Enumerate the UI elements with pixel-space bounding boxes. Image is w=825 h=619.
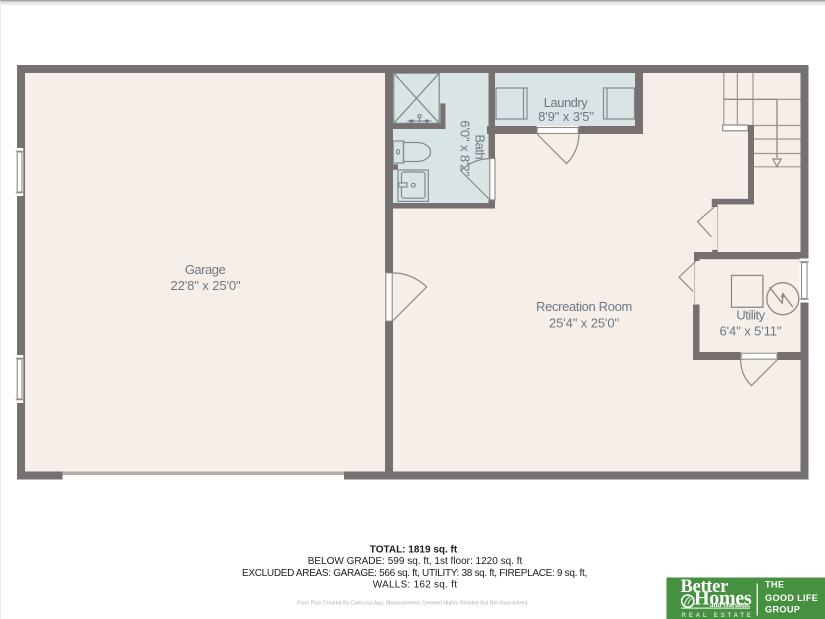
svg-text:Garage: Garage (185, 262, 226, 277)
svg-text:EXCLUDED AREAS: GARAGE: 566 sq: EXCLUDED AREAS: GARAGE: 566 sq. ft, UTIL… (242, 568, 587, 579)
svg-text:GOOD LIFE: GOOD LIFE (765, 593, 818, 603)
svg-text:Recreation Room: Recreation Room (536, 299, 632, 314)
svg-text:TOTAL: 1819 sq. ft: TOTAL: 1819 sq. ft (370, 545, 458, 556)
svg-text:GROUP: GROUP (765, 604, 800, 614)
svg-text:Floor Plan Created By Cubicasa: Floor Plan Created By Cubicasa App, Meas… (297, 600, 528, 606)
svg-text:Utility: Utility (736, 308, 765, 323)
svg-text:WALLS: 162 sq. ft: WALLS: 162 sq. ft (373, 579, 457, 590)
svg-text:8'9" x 3'5": 8'9" x 3'5" (538, 109, 594, 124)
svg-text:Bath: Bath (473, 134, 488, 159)
svg-text:BELOW GRADE: 599 sq. ft, 1st f: BELOW GRADE: 599 sq. ft, 1st floor: 1220… (308, 556, 523, 567)
svg-text:THE: THE (765, 580, 784, 590)
svg-text:REAL ESTATE: REAL ESTATE (682, 612, 754, 619)
svg-text:22'8" x 25'0": 22'8" x 25'0" (171, 278, 241, 293)
svg-text:6'4" x 5'11": 6'4" x 5'11" (720, 324, 782, 339)
svg-text:25'4" x 25'0": 25'4" x 25'0" (549, 315, 619, 330)
svg-text:6'0" x 8'2": 6'0" x 8'2" (458, 120, 473, 176)
svg-text:Laundry: Laundry (544, 95, 588, 110)
